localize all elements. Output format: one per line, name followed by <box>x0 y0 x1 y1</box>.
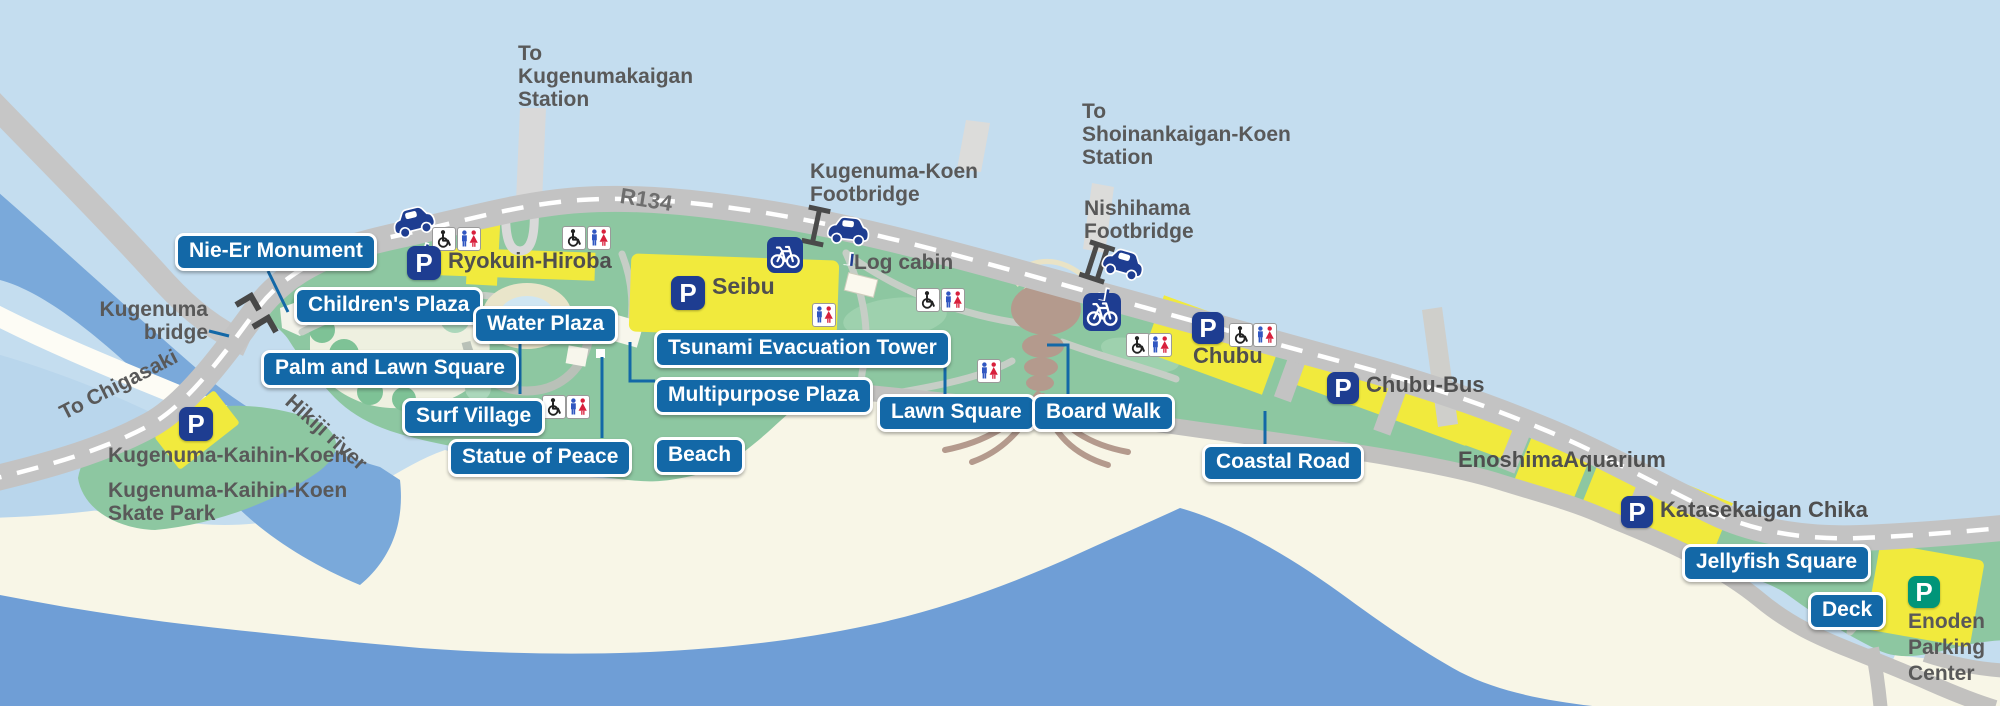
label-surf-village: Surf Village <box>402 398 545 436</box>
label-nie-er-monument: Nie-Er Monument <box>175 233 377 271</box>
log-cabin-label: Log cabin <box>854 251 953 274</box>
label-deck: Deck <box>1808 592 1886 630</box>
kugenuma-kaihin-koen-label: Kugenuma-Kaihin-Koen <box>108 444 347 467</box>
toilet-icon <box>941 288 965 312</box>
chubu-bus-label: Chubu-Bus <box>1366 373 1485 396</box>
accessible-icon <box>1126 333 1150 357</box>
katasekaigan-chika-label: Katasekaigan Chika <box>1660 498 1868 521</box>
chubu-label: Chubu <box>1193 344 1263 367</box>
enoshima-aquarium-label: EnoshimaAquarium <box>1458 448 1666 471</box>
accessible-icon <box>542 395 566 419</box>
accessible-icon <box>916 288 940 312</box>
parking-icon-katasekaigan: P <box>1621 496 1653 528</box>
direction-to-kugenumakaigan: To Kugenumakaigan Station <box>518 42 693 111</box>
toilet-icon <box>1148 333 1172 357</box>
parking-icon-enoden: P <box>1908 576 1940 608</box>
toilet-icon <box>812 303 836 327</box>
seibu-label: Seibu <box>712 275 775 298</box>
label-multipurpose-plaza: Multipurpose Plaza <box>654 377 873 415</box>
kugenuma-kaihin-koen-skate-park-label: Kugenuma-Kaihin-Koen Skate Park <box>108 479 347 525</box>
toilet-icon <box>587 226 611 250</box>
parking-icon-chubu: P <box>1192 312 1224 344</box>
bicycle-icon <box>767 237 803 273</box>
accessible-icon <box>562 226 586 250</box>
label-water-plaza: Water Plaza <box>473 306 618 344</box>
parking-icon-chubu-bus: P <box>1327 372 1359 404</box>
label-board-walk: Board Walk <box>1032 394 1175 432</box>
area-map: P P P P P P P To Kugenumakaigan Station … <box>0 0 2000 706</box>
entrance-arrow-icon <box>833 236 856 266</box>
ryokuin-hiroba-label: Ryokuin-Hiroba <box>448 249 612 272</box>
label-beach: Beach <box>654 437 745 475</box>
label-palm-and-lawn-square: Palm and Lawn Square <box>261 350 519 388</box>
label-childrens-plaza: Children's Plaza <box>294 287 483 325</box>
parking-icon-ryokuin: P <box>407 246 441 280</box>
label-statue-of-peace: Statue of Peace <box>448 439 632 477</box>
nishihama-footbridge-label: Nishihama Footbridge <box>1084 197 1194 243</box>
parking-icon-kugenuma-kaihin-koen: P <box>179 407 213 441</box>
direction-to-shoinankaigan: To Shoinankaigan-Koen Station <box>1082 100 1291 169</box>
coastal-road-branch <box>1872 648 1881 706</box>
station-road <box>516 108 546 202</box>
kugenuma-koen-footbridge-label: Kugenuma-Koen Footbridge <box>810 160 978 206</box>
parking-icon-seibu: P <box>671 276 705 310</box>
toilet-icon <box>977 359 1001 383</box>
label-jellyfish-square: Jellyfish Square <box>1682 544 1871 582</box>
label-coastal-road: Coastal Road <box>1202 444 1364 482</box>
label-lawn-square: Lawn Square <box>877 394 1036 432</box>
kugenuma-bridge-label: Kugenuma bridge <box>80 298 208 344</box>
toilet-icon <box>566 395 590 419</box>
label-tsunami-evacuation-tower: Tsunami Evacuation Tower <box>654 330 951 368</box>
enoden-parking-center-label: Enoden Parking Center <box>1908 609 1985 687</box>
